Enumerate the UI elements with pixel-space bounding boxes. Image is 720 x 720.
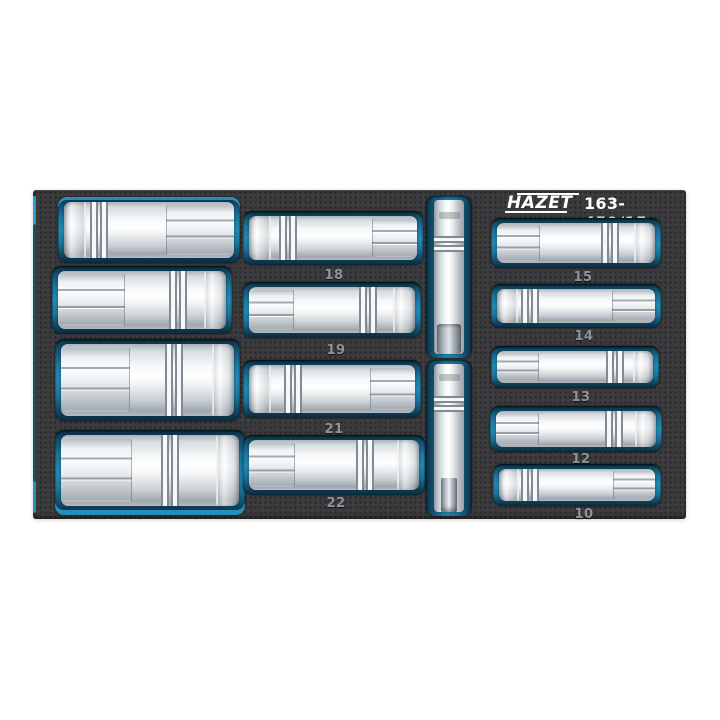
- socket-hex-end: [497, 353, 539, 381]
- socket-15: [497, 223, 655, 263]
- size-label-18: 18: [318, 268, 350, 283]
- socket-13: [497, 351, 653, 383]
- engraving-mark: [439, 212, 460, 219]
- socket-knurl-rings: [521, 469, 539, 501]
- pocket-socket-10: [493, 464, 661, 506]
- pocket-socket-13: [491, 346, 659, 388]
- engraving-mark: [439, 374, 460, 381]
- socket-hex-end: [61, 348, 130, 411]
- socket-drive-end: [497, 289, 518, 323]
- socket-knurl-rings: [284, 365, 302, 413]
- pocket-large-socket-4: [55, 430, 245, 515]
- socket-knurl-rings: [279, 216, 297, 260]
- size-label-14: 14: [568, 329, 600, 344]
- pocket-socket-21: [243, 360, 421, 418]
- socket-drive-end: [635, 411, 656, 447]
- socket-knurl-rings: [521, 289, 539, 323]
- pocket-socket-12: [490, 406, 662, 452]
- pocket-socket-19: [243, 282, 421, 338]
- socket-hex-end: [372, 219, 417, 258]
- socket-drive-end: [204, 271, 226, 329]
- large-socket-2: [58, 271, 226, 329]
- socket-drive-end: [216, 435, 239, 506]
- socket-knurl-rings: [359, 287, 377, 333]
- pocket-socket-14: [491, 284, 661, 328]
- pocket-large-socket-1: [58, 197, 240, 263]
- pocket-socket-22: [243, 435, 425, 495]
- extension-knurl-rings: [434, 236, 464, 252]
- size-label-19: 19: [320, 343, 352, 358]
- socket-knurl-rings: [161, 435, 179, 506]
- socket-hex-end: [496, 413, 539, 445]
- socket-14: [497, 289, 655, 323]
- socket-knurl-rings: [169, 271, 187, 329]
- socket-drive-end: [212, 344, 234, 416]
- extension-drive-end: [437, 324, 461, 354]
- socket-hex-end: [166, 205, 234, 254]
- socket-knurl-rings: [601, 223, 619, 263]
- socket-hex-end: [249, 443, 295, 487]
- extension-bar-bottom: [434, 364, 464, 512]
- pocket-extension-top: [426, 196, 472, 358]
- large-socket-3: [61, 344, 234, 416]
- socket-drive-end: [393, 287, 415, 333]
- socket-hex-end: [370, 368, 415, 410]
- socket-drive-end: [249, 216, 271, 260]
- socket-drive-end: [634, 223, 655, 263]
- socket-hex-end: [61, 439, 132, 502]
- product-photo: HAZET 163-459/15: [0, 0, 720, 720]
- socket-19: [249, 287, 415, 333]
- socket-drive-end: [249, 365, 271, 413]
- pocket-large-socket-2: [52, 266, 232, 334]
- size-label-10: 10: [568, 507, 600, 522]
- socket-drive-end: [633, 351, 653, 383]
- socket-hex-end: [612, 291, 655, 321]
- extension-drive-tip: [441, 478, 457, 512]
- socket-knurl-rings: [165, 344, 183, 416]
- socket-22: [249, 440, 419, 490]
- socket-18: [249, 216, 417, 260]
- extension-bar-top: [434, 200, 464, 354]
- socket-drive-end: [397, 440, 419, 490]
- logo-overline: [517, 193, 579, 195]
- socket-knurl-rings: [90, 202, 108, 258]
- socket-knurl-rings: [606, 351, 624, 383]
- socket-hex-end: [58, 274, 125, 325]
- socket-10: [499, 469, 655, 501]
- extension-knurl-rings: [434, 396, 464, 412]
- large-socket-1: [64, 202, 234, 258]
- socket-drive-end: [499, 469, 519, 501]
- size-label-13: 13: [565, 390, 597, 405]
- pocket-large-socket-3: [55, 339, 240, 421]
- foam-tool-tray: HAZET 163-459/15: [33, 190, 686, 519]
- socket-drive-end: [64, 202, 86, 258]
- size-label-15: 15: [567, 270, 599, 285]
- pocket-extension-bottom: [426, 360, 472, 516]
- logo-underline: [505, 211, 567, 213]
- pocket-socket-15: [491, 218, 661, 268]
- socket-12: [496, 411, 656, 447]
- pocket-socket-18: [243, 211, 423, 265]
- socket-knurl-rings: [356, 440, 374, 490]
- brand-text: HAZET: [507, 193, 572, 213]
- socket-hex-end: [249, 290, 294, 331]
- size-label-22: 22: [320, 496, 352, 511]
- socket-hex-end: [613, 471, 655, 499]
- socket-knurl-rings: [605, 411, 623, 447]
- socket-hex-end: [497, 225, 540, 260]
- hazet-logo: HAZET: [507, 193, 577, 213]
- socket-21: [249, 365, 415, 413]
- large-socket-4: [61, 435, 239, 506]
